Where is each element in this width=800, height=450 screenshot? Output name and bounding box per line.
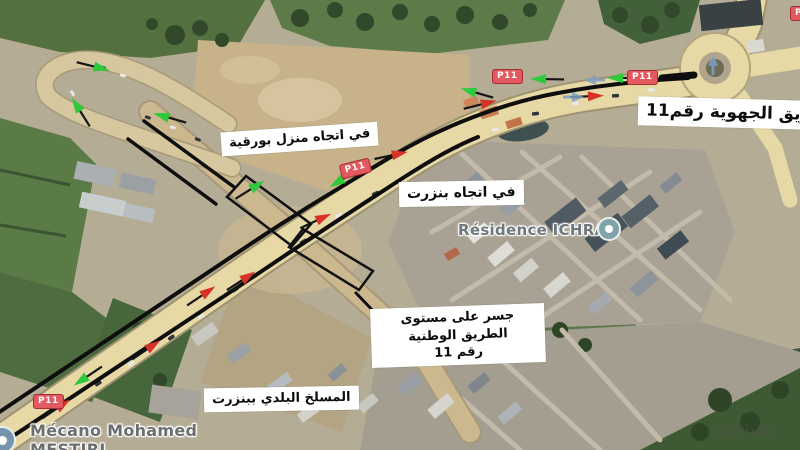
green-arrow — [530, 74, 564, 85]
label-bridge: جسر على مستوى الطريق الوطنية رقم 11 — [370, 303, 546, 368]
pin-dot — [0, 436, 7, 445]
place-label-mechanic: Mécano Mohamed MESTIRI — [30, 421, 197, 450]
satellite-map-viewport: الطريق الجهوية رقم11 في اتجاه منزل بورقي… — [0, 0, 800, 450]
road-badge-p11: P11 — [790, 6, 800, 21]
pin-dot — [605, 225, 613, 233]
road-badge-p11: P11 — [33, 394, 64, 409]
watermark-active: Active — [716, 422, 772, 442]
place-pin-icon — [597, 217, 621, 241]
label-towards-bizerte: في اتجاه بنزرت — [399, 180, 524, 207]
label-municipal-slaughterhouse: المسلخ البلدي ببنزرت — [204, 386, 359, 412]
satellite-map — [0, 0, 800, 450]
road-badge-p11: P11 — [492, 69, 523, 84]
road-badge-p11: P11 — [627, 70, 658, 85]
place-label-mechanic-line1: Mécano Mohamed — [30, 421, 197, 440]
place-label-mechanic-line2: MESTIRI — [30, 440, 197, 450]
roundabout — [680, 33, 750, 103]
label-bridge-line1: جسر على مستوى الطريق الوطنية — [378, 306, 537, 347]
label-regional-road: الطريق الجهوية رقم11 — [638, 96, 800, 130]
place-label-residence-ichrak: Résidence ICHRAK — [458, 221, 618, 239]
